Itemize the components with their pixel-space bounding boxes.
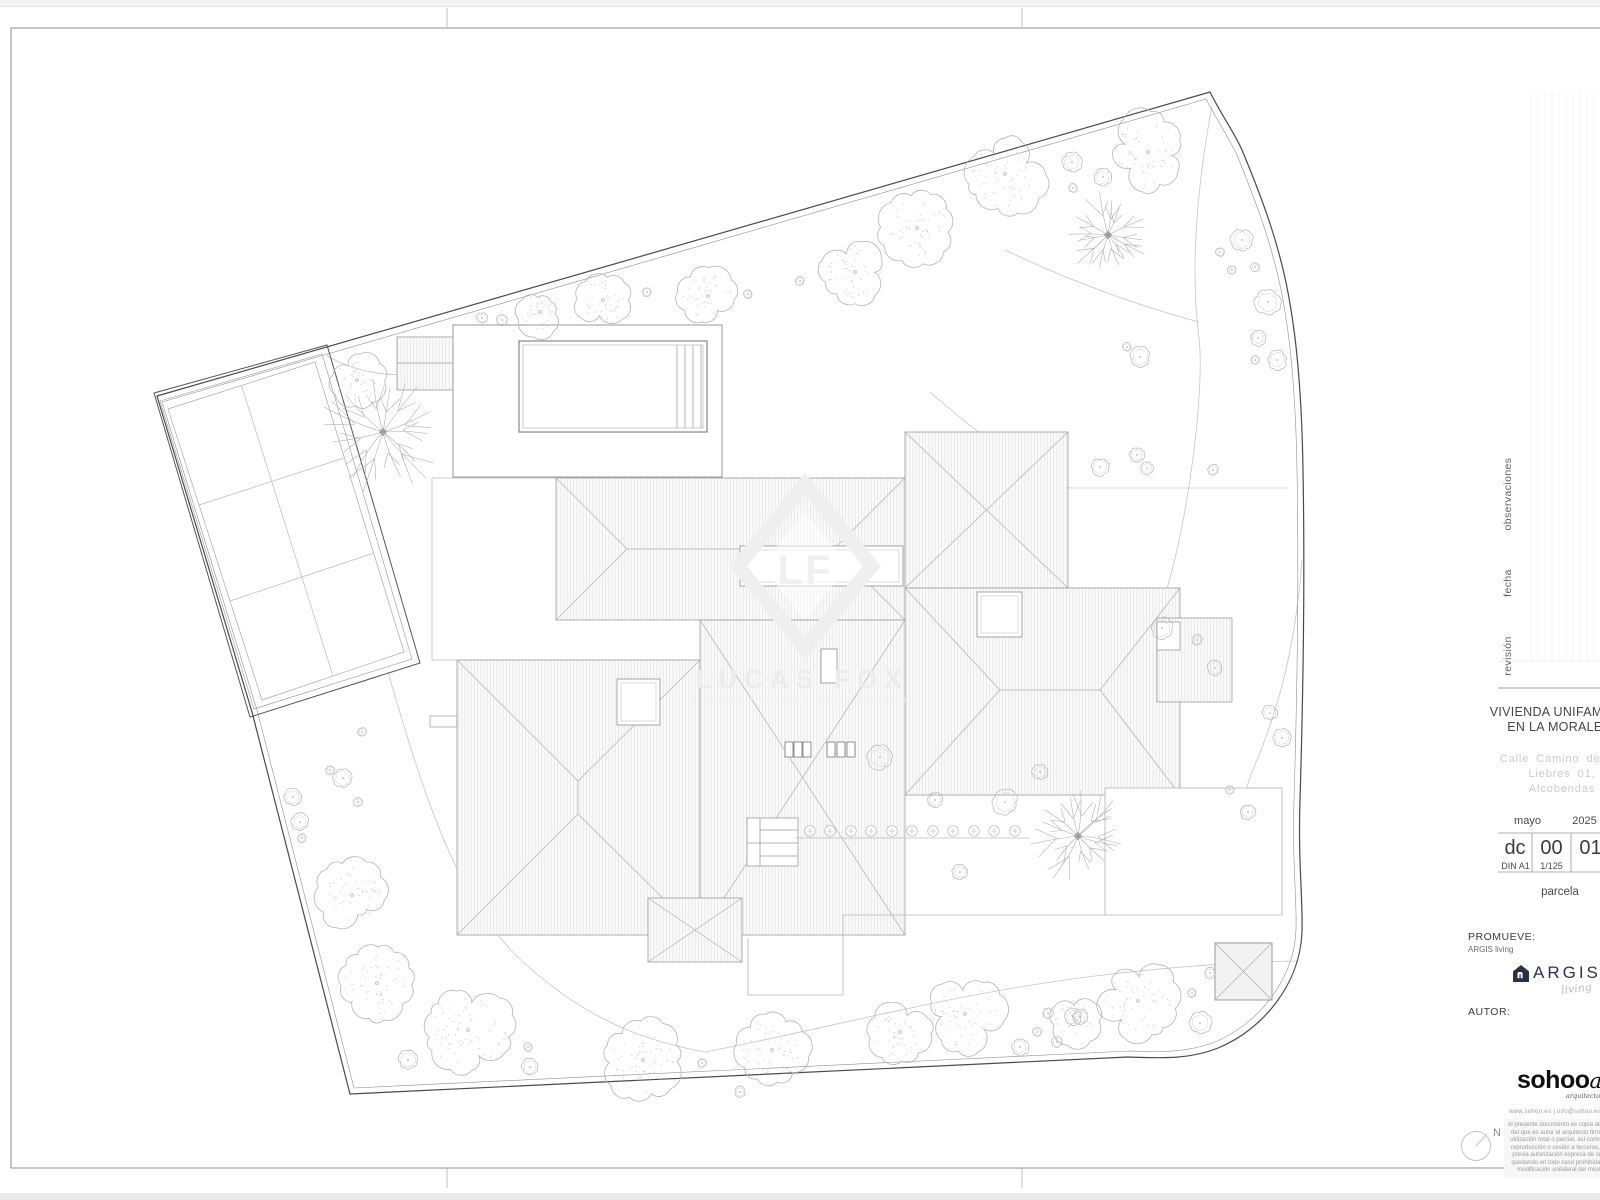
promoter-name: ARGIS living bbox=[1468, 945, 1513, 954]
shrub-center bbox=[1257, 337, 1259, 339]
tree-crown bbox=[878, 190, 953, 267]
shrub-center bbox=[1139, 356, 1141, 358]
disclaimer-line: modificación unilateral del mismo. bbox=[1508, 1167, 1600, 1175]
shrub-center bbox=[747, 293, 749, 295]
disclaimer-line: el presente documento es copia de su or bbox=[1508, 1122, 1600, 1130]
revision-col-observaciones: observaciones bbox=[1502, 458, 1514, 531]
project-title-line2: EN LA MORALEJA bbox=[1455, 720, 1600, 735]
tree-stipple bbox=[434, 996, 506, 1064]
tree-crown bbox=[818, 241, 882, 305]
shrub-center bbox=[1191, 992, 1193, 994]
shrub-center bbox=[1019, 1046, 1021, 1048]
tree-trunk bbox=[854, 271, 857, 274]
shrub-center bbox=[1099, 466, 1101, 468]
shrub-center bbox=[1212, 469, 1214, 471]
shrub-center bbox=[934, 799, 936, 801]
drawing-scale: 1/125 bbox=[1532, 861, 1571, 871]
shrub-center bbox=[301, 837, 303, 839]
shrub-center bbox=[1229, 789, 1231, 791]
disclaimer-line: utilización total o parcial, así como cu… bbox=[1508, 1137, 1600, 1145]
code-type: dc bbox=[1498, 837, 1532, 860]
shrub-center bbox=[1136, 454, 1138, 456]
shrub-center bbox=[1209, 972, 1211, 974]
chimney-west bbox=[617, 679, 660, 725]
shrub-center bbox=[1056, 1041, 1058, 1043]
tree-trunk bbox=[351, 894, 354, 897]
tree-trunk bbox=[356, 379, 359, 382]
code-sheet: 01 bbox=[1571, 837, 1600, 860]
shrub-center bbox=[1281, 737, 1283, 739]
date-year: 2025 bbox=[1562, 815, 1600, 827]
sohoo-wordmark: sohoo bbox=[1517, 1066, 1590, 1094]
shrub-center bbox=[1214, 667, 1216, 669]
argis-house-icon bbox=[1513, 965, 1529, 982]
sohoo-tagline: arquitectos bbox=[1566, 1092, 1600, 1100]
watermark-tagline: INTERNATIONAL PROPERTIES bbox=[693, 696, 910, 705]
shrub-center bbox=[407, 1059, 409, 1061]
code-number: 00 bbox=[1532, 837, 1571, 860]
tree-trunk bbox=[916, 227, 919, 230]
shrub-center bbox=[481, 317, 483, 319]
shrub-center bbox=[1039, 771, 1041, 773]
pool bbox=[397, 325, 722, 477]
shrub-center bbox=[1231, 269, 1233, 271]
tree-trunk bbox=[707, 295, 710, 298]
tree-stipple bbox=[329, 868, 380, 921]
tree-trunk bbox=[771, 1049, 774, 1052]
tree-trunk bbox=[899, 1031, 902, 1034]
address-line2: Liebres 01, bbox=[1462, 767, 1600, 782]
north-compass: N bbox=[1462, 1127, 1502, 1161]
roof-west-wing bbox=[457, 660, 700, 935]
revision-col-revision: revisión bbox=[1502, 636, 1514, 675]
promoter-label: PROMUEVE: bbox=[1468, 931, 1536, 943]
tree-stipple bbox=[682, 275, 730, 320]
shrub-center bbox=[361, 731, 363, 733]
tree-stipple bbox=[587, 281, 624, 322]
roof-far-east bbox=[1157, 618, 1232, 702]
shrub-center bbox=[1254, 359, 1256, 361]
sohoo-script-letter: a bbox=[1590, 1069, 1600, 1093]
shrub-center bbox=[299, 821, 301, 823]
watermark-monogram: LF bbox=[777, 546, 832, 593]
garden-pad bbox=[1215, 943, 1272, 1000]
shrub-center bbox=[529, 1066, 531, 1068]
tree-stipple bbox=[345, 956, 406, 1014]
paper-size: DIN A1 bbox=[1499, 861, 1532, 871]
shrub-center bbox=[1071, 161, 1073, 163]
shrub-center bbox=[739, 1091, 741, 1093]
address-line1: Calle Camino de las bbox=[1462, 752, 1600, 767]
address-line3: Alcobendas bbox=[1462, 782, 1600, 797]
skylight-square bbox=[977, 592, 1022, 637]
argis-wordmark: ARGIS bbox=[1533, 963, 1600, 982]
shrub-center bbox=[1126, 346, 1128, 348]
shrub-center bbox=[1199, 1022, 1201, 1024]
tree-trunk bbox=[467, 1029, 470, 1032]
shrub-center bbox=[1161, 627, 1163, 629]
shrub-center bbox=[527, 1046, 529, 1048]
shrub-center bbox=[357, 801, 359, 803]
shrub-center bbox=[1196, 639, 1198, 641]
roof-east-wing bbox=[905, 588, 1180, 795]
tree-crown bbox=[930, 981, 1008, 1057]
project-title-line1: VIVIENDA UNIFAMILIAR bbox=[1455, 705, 1600, 720]
shrub-center bbox=[1219, 251, 1221, 253]
tree-stipple bbox=[1115, 124, 1181, 186]
shrub-center bbox=[799, 280, 801, 282]
east-terrace bbox=[1105, 788, 1282, 915]
tree-crown bbox=[964, 136, 1049, 216]
tree-stipple bbox=[612, 1033, 674, 1093]
shrub-center bbox=[1276, 359, 1278, 361]
tree-stipple bbox=[972, 144, 1035, 207]
shrub-center bbox=[342, 777, 344, 779]
tennis-court bbox=[154, 345, 420, 717]
shrub-center bbox=[959, 871, 961, 873]
shrub-center bbox=[501, 319, 503, 321]
disclaimer-block: el presente documento es copia de su or … bbox=[1504, 1119, 1600, 1178]
tree-trunk bbox=[602, 299, 605, 302]
date-month: mayo bbox=[1505, 815, 1550, 827]
shrub-center bbox=[1072, 187, 1074, 189]
shrub-center bbox=[1079, 1016, 1081, 1018]
bare-tree bbox=[1070, 191, 1145, 268]
shrub-center bbox=[292, 796, 294, 798]
tree-crown bbox=[424, 990, 516, 1075]
shrub-center bbox=[1036, 1031, 1038, 1033]
north-label: N bbox=[1493, 1127, 1501, 1139]
shrub-center bbox=[1269, 712, 1271, 714]
tree-crown bbox=[676, 266, 738, 323]
sheet-name: parcela bbox=[1498, 886, 1600, 898]
plan-sheet: LF LUCAS FOX INTERNATIONAL PROPERTIES N … bbox=[0, 0, 1600, 1200]
tree-stipple bbox=[890, 202, 945, 255]
shrub-center bbox=[646, 291, 648, 293]
terrace-steps bbox=[747, 818, 798, 866]
shrub-center bbox=[1004, 801, 1006, 803]
tree-trunk bbox=[964, 1013, 967, 1016]
shrub-center bbox=[1146, 467, 1148, 469]
bare-tree bbox=[324, 380, 433, 492]
author-label: AUTOR: bbox=[1468, 1006, 1510, 1018]
shrub-center bbox=[329, 769, 331, 771]
tree-trunk bbox=[539, 311, 542, 314]
tree-trunk bbox=[1147, 151, 1150, 154]
disclaimer-line: previa autorización expresa de su aut bbox=[1508, 1152, 1600, 1160]
disclaimer-line: quedando en todo caso prohibida cual bbox=[1508, 1160, 1600, 1168]
revision-table-lines bbox=[1531, 92, 1594, 660]
roof-northeast-wing bbox=[905, 432, 1068, 588]
tree-crown bbox=[1097, 964, 1181, 1044]
shrub-center bbox=[1047, 1012, 1049, 1014]
tree-trunk bbox=[1137, 1000, 1140, 1003]
watermark-name: LUCAS FOX bbox=[695, 664, 908, 694]
tree-stipple bbox=[876, 1009, 917, 1056]
revision-col-fecha: fecha bbox=[1502, 569, 1514, 597]
shrub-center bbox=[701, 1062, 703, 1064]
sohoo-contact: www.sohoo.es | info@sohoo.es bbox=[1500, 1109, 1600, 1115]
shrub-center bbox=[1267, 301, 1269, 303]
tree-trunk bbox=[376, 982, 379, 985]
shrub-center bbox=[1102, 176, 1104, 178]
tree-crown bbox=[1113, 108, 1181, 193]
disclaimer-line: del que es autor el arquitecto firmante, bbox=[1508, 1130, 1600, 1138]
tree-trunk bbox=[642, 1059, 645, 1062]
disclaimer-line: reproducción o cesión a terceros, requ bbox=[1508, 1145, 1600, 1153]
shrub-center bbox=[879, 756, 881, 758]
shrub-center bbox=[1254, 266, 1256, 268]
shrub-center bbox=[1241, 239, 1243, 241]
tree-trunk bbox=[1004, 173, 1007, 176]
roof-south-stub bbox=[648, 898, 742, 962]
sohoo-logo: sohooa bbox=[1517, 1066, 1600, 1095]
tree-stipple bbox=[742, 1025, 799, 1074]
site-plan-drawing: LF LUCAS FOX INTERNATIONAL PROPERTIES N bbox=[0, 0, 1600, 1200]
shrub-center bbox=[1247, 811, 1249, 813]
pool-pad bbox=[397, 337, 453, 390]
